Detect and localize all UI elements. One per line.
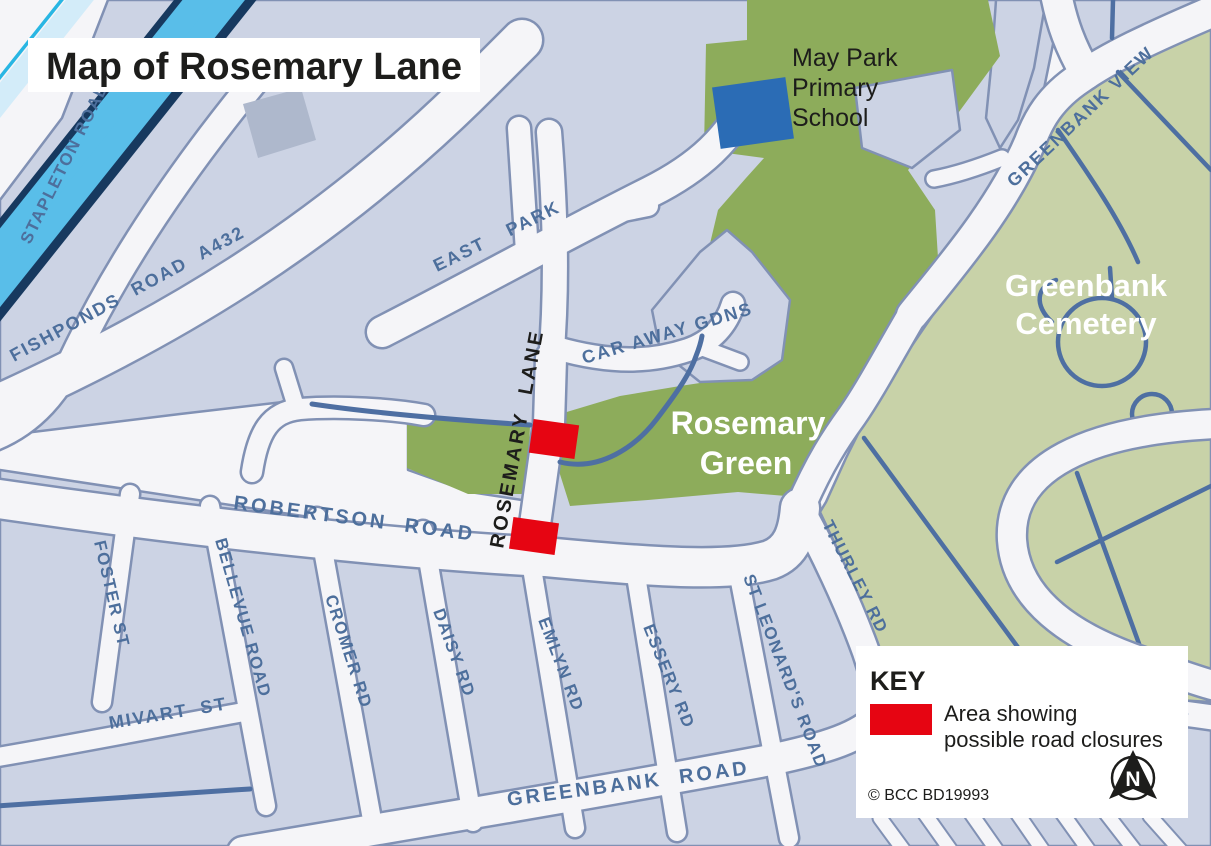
label-greenbank-cemetery-1: Greenbank [1005,268,1168,303]
map-of-rosemary-lane: STAPLETON ROAD FISHPONDS ROAD A432 EAST … [0,0,1211,846]
label-greenbank-cemetery-2: Cemetery [1015,306,1157,341]
label-may-park-1: May Park [792,44,898,72]
key-copyright: © BCC BD19993 [868,787,989,804]
closure-rosemary-lane-south [509,517,559,555]
label-may-park-3: School [792,104,868,132]
key-closure-label-2: possible road closures [944,727,1163,752]
page-title: Map of Rosemary Lane [46,46,462,88]
closure-rosemary-lane-north [529,419,579,459]
key-closure-swatch [870,704,932,735]
key-box: KEY Area showing possible road closures … [856,646,1188,818]
map-canvas: STAPLETON ROAD FISHPONDS ROAD A432 EAST … [0,0,1211,846]
may-park-school-building [712,77,794,149]
label-may-park-2: Primary [792,74,879,102]
north-arrow-letter: N [1125,768,1140,791]
title-box: Map of Rosemary Lane [28,38,480,92]
key-heading: KEY [870,666,926,696]
key-closure-label-1: Area showing [944,701,1077,726]
label-rosemary-green-2: Green [700,445,792,481]
label-rosemary-green-1: Rosemary [671,405,826,441]
